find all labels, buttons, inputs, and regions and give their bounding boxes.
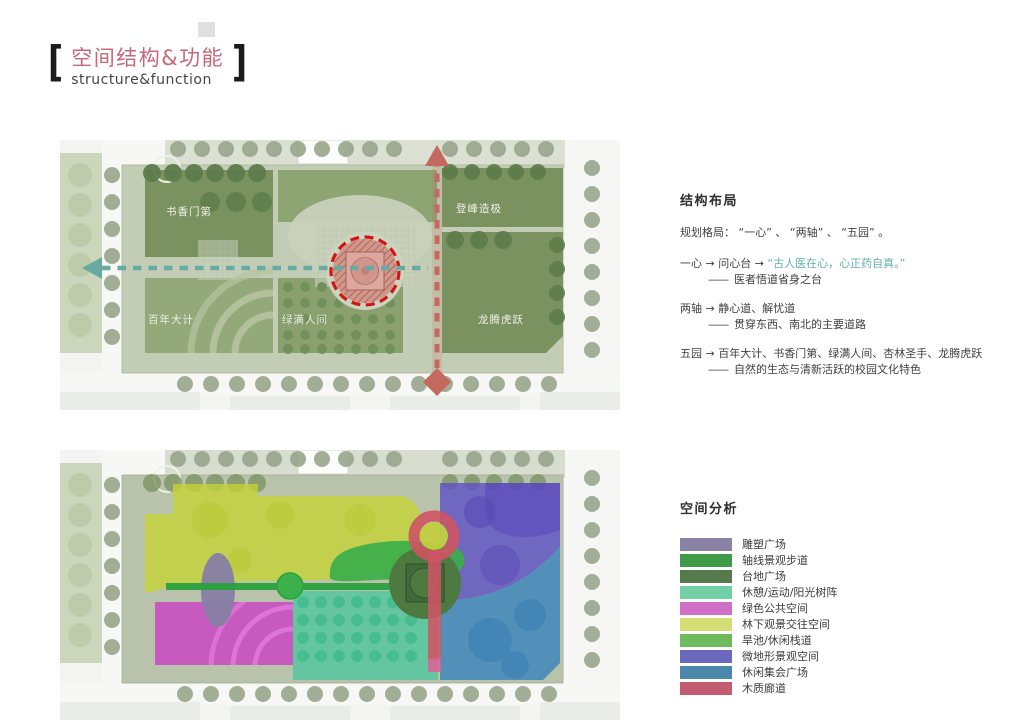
- park-trees-c: [446, 231, 512, 249]
- item-dash: ——: [708, 273, 728, 286]
- legend-swatch: [680, 618, 732, 631]
- bracket-right: ]: [232, 40, 247, 88]
- legend-swatch: [680, 634, 732, 647]
- item-desc-text: 贯穿东西、南北的主要道路: [734, 318, 866, 331]
- analysis-plan-map: [60, 450, 620, 720]
- item-highlight: “古人医在心，心正药自真。”: [767, 257, 905, 270]
- legend-label: 微地形景观空间: [742, 648, 819, 664]
- zone-label-dengfengzaoji: 登峰造极: [456, 202, 502, 215]
- zone-label-bainiandaji: 百年大计: [148, 313, 194, 326]
- legend-swatch: [680, 554, 732, 567]
- legend-item: 微地形景观空间: [680, 648, 1024, 664]
- legend-item: 林下观景交往空间: [680, 616, 1024, 632]
- legend-item: 雕塑广场: [680, 536, 1024, 552]
- page-ornament: [198, 22, 215, 37]
- legend-label: 轴线景观步道: [742, 552, 808, 568]
- item-lead: 五园 → 百年大计、书香门第、绿满人间、杏林圣手、龙腾虎跃: [680, 347, 982, 360]
- analysis-header: 空间分析: [680, 498, 1024, 517]
- page-title: [ 空间结构&功能 structure&function ]: [46, 40, 249, 88]
- structure-header: 结构布局: [680, 190, 1024, 209]
- legend-label: 绿色公共空间: [742, 600, 808, 616]
- legend-label: 休憩/运动/阳光树阵: [742, 584, 837, 600]
- structure-plan-map: 书香门第 登峰造极 百年大计 绿满人间 龙腾虎跃: [60, 140, 620, 410]
- tree-row-bottom: [177, 686, 557, 702]
- legend-item: 休憩/运动/阳光树阵: [680, 584, 1024, 600]
- legend-label: 旱池/休闲栈道: [742, 632, 812, 648]
- legend-swatch: [680, 682, 732, 695]
- legend-swatch: [680, 586, 732, 599]
- item-desc-text: 自然的生态与清新活跃的校园文化特色: [734, 363, 921, 376]
- analysis-legend: 空间分析 雕塑广场 轴线景观步道 台地广场 休憩/运动/阳光树阵 绿色公共空间: [680, 498, 1024, 696]
- item-dash: ——: [708, 363, 728, 376]
- legend-swatch: [680, 666, 732, 679]
- item-dash: ——: [708, 318, 728, 331]
- legend-label: 木质廊道: [742, 680, 786, 696]
- item-lead: 两轴 → 静心道、解忧道: [680, 302, 795, 315]
- zone-label-lvmanrenjian: 绿满人间: [282, 313, 328, 326]
- analysis-plan-svg: [60, 450, 620, 720]
- heart-plaza: [326, 232, 404, 310]
- zone-label-shuxiangmendi: 书香门第: [166, 205, 212, 218]
- legend-rows: 雕塑广场 轴线景观步道 台地广场 休憩/运动/阳光树阵 绿色公共空间 林下观景交…: [680, 536, 1024, 696]
- legend-swatch: [680, 650, 732, 663]
- legend-label: 雕塑广场: [742, 536, 786, 552]
- legend-item: 轴线景观步道: [680, 552, 1024, 568]
- planning-pattern-line: 规划格局： “一心” 、 “两轴” 、 “五园” 。: [680, 225, 1024, 241]
- note-item-two-axes: 两轴 → 静心道、解忧道 ——贯穿东西、南北的主要道路: [680, 301, 1024, 333]
- legend-label: 林下观景交往空间: [742, 616, 830, 632]
- legend-label: 休闲集会广场: [742, 664, 808, 680]
- legend-swatch: [680, 538, 732, 551]
- zone-label-longtenghuyue: 龙腾虎跃: [478, 313, 524, 326]
- structure-notes: 结构布局 规划格局： “一心” 、 “两轴” 、 “五园” 。 一心 → 问心台…: [680, 190, 1024, 391]
- note-item-one-heart: 一心 → 问心台 → “古人医在心，心正药自真。” ——医者悟道省身之台: [680, 256, 1024, 288]
- legend-label: 台地广场: [742, 568, 786, 584]
- legend-item: 绿色公共空间: [680, 600, 1024, 616]
- legend-item: 旱池/休闲栈道: [680, 632, 1024, 648]
- title-english: structure&function: [71, 72, 224, 88]
- tree-row-bottom: [177, 376, 557, 392]
- slide-page: [ 空间结构&功能 structure&function ]: [0, 0, 1024, 724]
- legend-swatch: [680, 570, 732, 583]
- item-desc-text: 医者悟道省身之台: [734, 273, 822, 286]
- structure-plan-svg: 书香门第 登峰造极 百年大计 绿满人间 龙腾虎跃: [60, 140, 620, 410]
- item-lead: 一心 → 问心台 →: [680, 257, 767, 270]
- legend-swatch: [680, 602, 732, 615]
- legend-item: 台地广场: [680, 568, 1024, 584]
- note-item-five-gardens: 五园 → 百年大计、书香门第、绿满人间、杏林圣手、龙腾虎跃 ——自然的生态与清新…: [680, 346, 1024, 378]
- title-chinese: 空间结构&功能: [71, 42, 224, 72]
- legend-item: 休闲集会广场: [680, 664, 1024, 680]
- legend-item: 木质廊道: [680, 680, 1024, 696]
- bracket-left: [: [48, 40, 63, 88]
